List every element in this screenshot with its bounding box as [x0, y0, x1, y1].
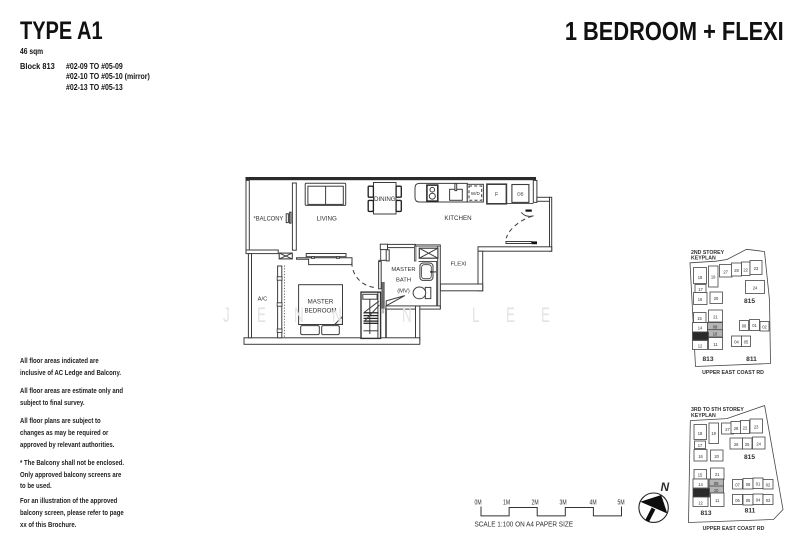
svg-text:05: 05 — [746, 498, 751, 503]
svg-text:*BALCONY: *BALCONY — [254, 216, 284, 222]
svg-text:815: 815 — [744, 454, 755, 461]
svg-text:KEYPLAN: KEYPLAN — [691, 256, 716, 262]
svg-text:F: F — [495, 192, 498, 198]
svg-text:02: 02 — [762, 325, 767, 330]
svg-text:14: 14 — [698, 482, 703, 487]
svg-text:19: 19 — [711, 275, 716, 280]
svg-text:26: 26 — [734, 442, 739, 447]
svg-text:N: N — [661, 480, 670, 494]
svg-text:23: 23 — [754, 266, 759, 271]
svg-text:21: 21 — [715, 472, 720, 477]
svg-text:04: 04 — [734, 340, 739, 345]
svg-text:08: 08 — [742, 324, 747, 329]
svg-text:10: 10 — [713, 332, 718, 337]
svg-text:DB: DB — [517, 192, 523, 197]
svg-text:15: 15 — [697, 316, 702, 321]
svg-text:09: 09 — [714, 481, 719, 486]
svg-text:(MV): (MV) — [397, 289, 410, 295]
svg-text:0M: 0M — [475, 499, 482, 507]
svg-text:11: 11 — [713, 342, 718, 347]
svg-text:23: 23 — [754, 425, 759, 430]
svg-text:UPPER EAST COAST RD: UPPER EAST COAST RD — [703, 526, 765, 532]
svg-text:17: 17 — [698, 443, 703, 448]
svg-text:07: 07 — [735, 483, 740, 488]
svg-text:A/C: A/C — [258, 296, 268, 302]
svg-text:LIVING: LIVING — [317, 215, 337, 222]
svg-text:05: 05 — [744, 340, 749, 345]
svg-text:811: 811 — [746, 356, 757, 363]
svg-text:16: 16 — [698, 454, 703, 459]
svg-text:18: 18 — [698, 275, 703, 280]
svg-text:BATH: BATH — [396, 278, 411, 284]
svg-text:04: 04 — [756, 498, 761, 503]
svg-text:4M: 4M — [590, 499, 597, 507]
svg-text:17: 17 — [698, 287, 703, 292]
svg-text:W/D: W/D — [471, 191, 481, 196]
svg-text:12: 12 — [698, 501, 703, 506]
svg-text:UPPER EAST COAST RD: UPPER EAST COAST RD — [702, 370, 764, 376]
svg-text:13: 13 — [699, 491, 704, 496]
svg-text:28: 28 — [734, 268, 739, 273]
svg-text:28: 28 — [734, 426, 739, 431]
svg-text:5M: 5M — [618, 499, 625, 507]
svg-text:27: 27 — [725, 427, 730, 432]
svg-text:815: 815 — [744, 298, 755, 305]
svg-text:813: 813 — [702, 356, 713, 363]
svg-text:3RD TO 5TH STOREY: 3RD TO 5TH STOREY — [691, 407, 744, 413]
svg-text:02: 02 — [766, 483, 771, 488]
svg-text:01: 01 — [756, 482, 761, 487]
svg-text:08: 08 — [746, 482, 751, 487]
svg-text:20: 20 — [714, 454, 719, 459]
svg-text:21: 21 — [713, 315, 718, 320]
svg-text:25: 25 — [745, 442, 750, 447]
svg-text:19: 19 — [711, 431, 716, 436]
svg-text:MASTER: MASTER — [308, 299, 334, 306]
svg-text:KITCHEN: KITCHEN — [444, 215, 471, 222]
svg-text:10: 10 — [714, 488, 719, 493]
svg-text:1M: 1M — [503, 499, 510, 507]
svg-text:24: 24 — [753, 286, 758, 291]
svg-text:811: 811 — [745, 508, 756, 515]
svg-text:14: 14 — [698, 326, 703, 331]
svg-text:18: 18 — [698, 431, 703, 436]
svg-text:SCALE 1:100 ON A4 PAPER SIZE: SCALE 1:100 ON A4 PAPER SIZE — [475, 521, 574, 528]
svg-text:27: 27 — [723, 270, 728, 275]
svg-text:MASTER: MASTER — [391, 267, 415, 273]
svg-text:22: 22 — [743, 268, 748, 273]
svg-text:2M: 2M — [532, 499, 539, 507]
svg-text:3M: 3M — [560, 499, 567, 507]
svg-text:01: 01 — [752, 323, 757, 328]
svg-text:13: 13 — [698, 334, 703, 339]
svg-text:22: 22 — [743, 426, 748, 431]
svg-text:11: 11 — [715, 498, 720, 503]
svg-text:16: 16 — [698, 297, 703, 302]
svg-text:09: 09 — [713, 325, 718, 330]
svg-text:DINING: DINING — [374, 196, 396, 203]
svg-text:15: 15 — [698, 473, 703, 478]
svg-text:KEYPLAN: KEYPLAN — [691, 413, 716, 419]
svg-text:03: 03 — [766, 498, 771, 503]
svg-text:20: 20 — [714, 296, 719, 301]
svg-text:FLEXI: FLEXI — [450, 261, 466, 267]
svg-text:12: 12 — [698, 343, 703, 348]
svg-text:24: 24 — [756, 442, 761, 447]
svg-text:06: 06 — [735, 498, 740, 503]
svg-text:813: 813 — [700, 510, 711, 517]
